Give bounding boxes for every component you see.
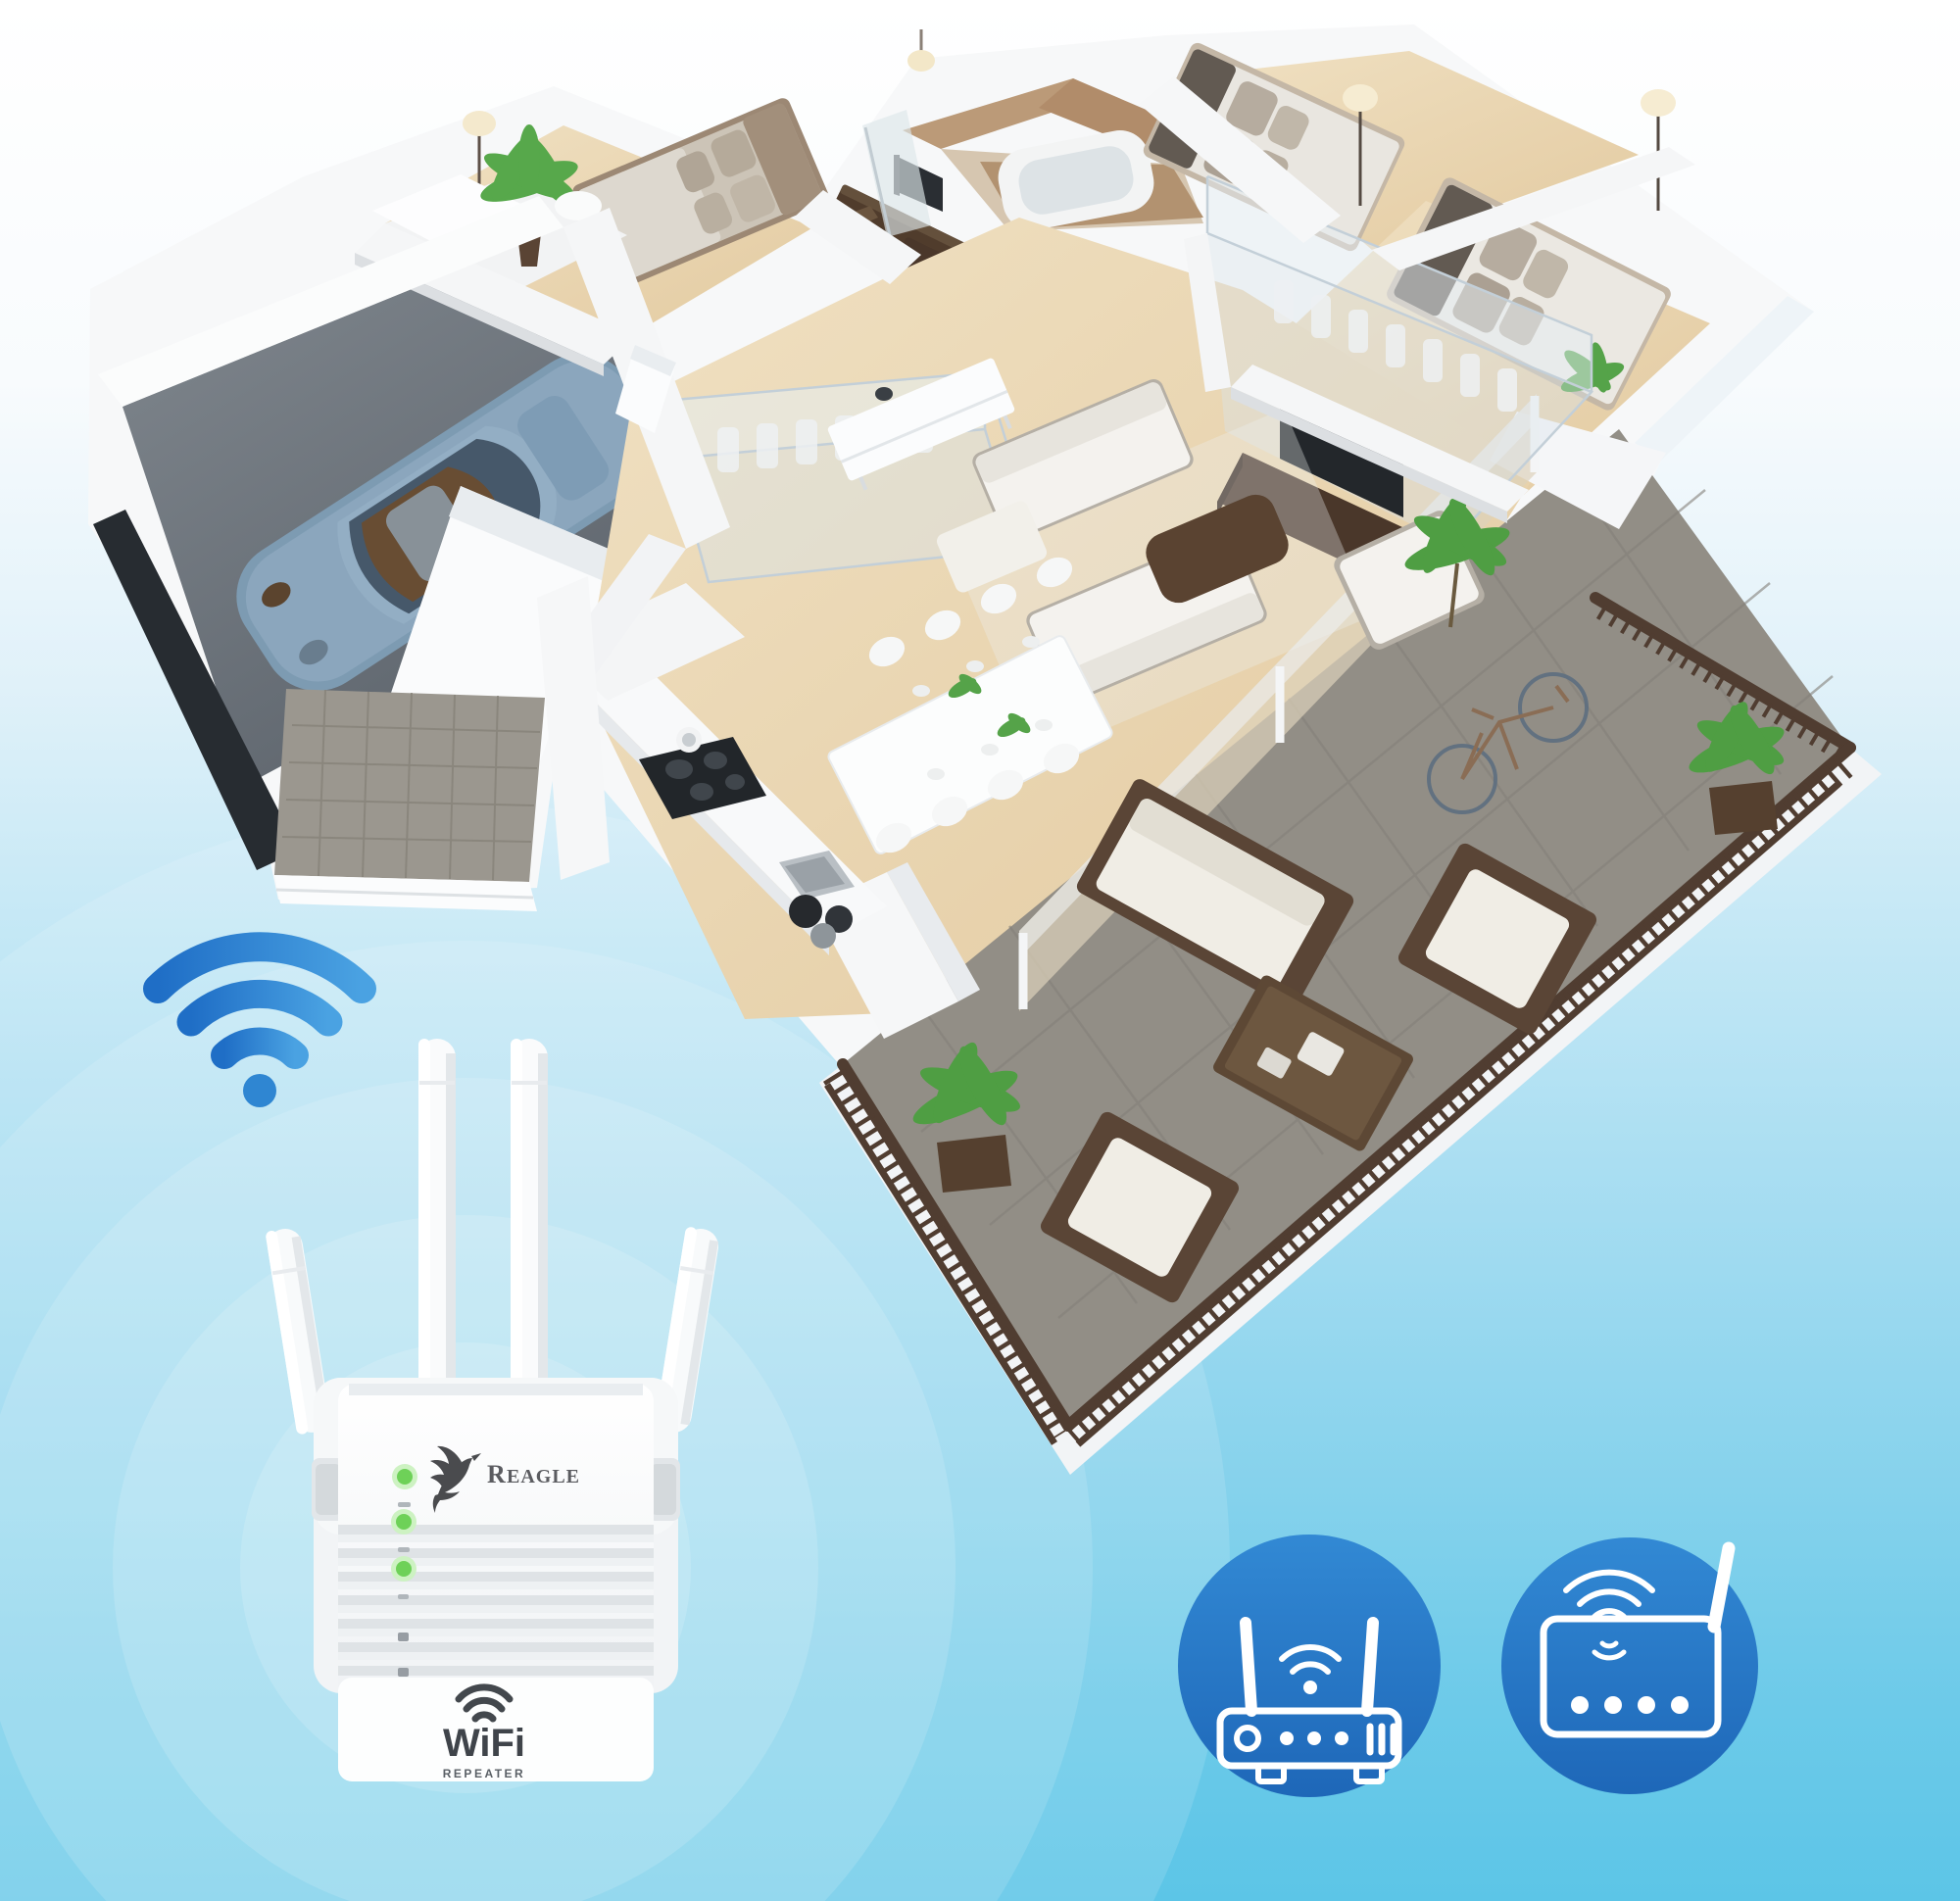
svg-text:WiFi: WiFi — [443, 1722, 525, 1765]
svg-text:REPEATER: REPEATER — [443, 1767, 525, 1780]
svg-text:EAGLE: EAGLE — [507, 1466, 580, 1487]
svg-text:R: R — [487, 1460, 507, 1488]
